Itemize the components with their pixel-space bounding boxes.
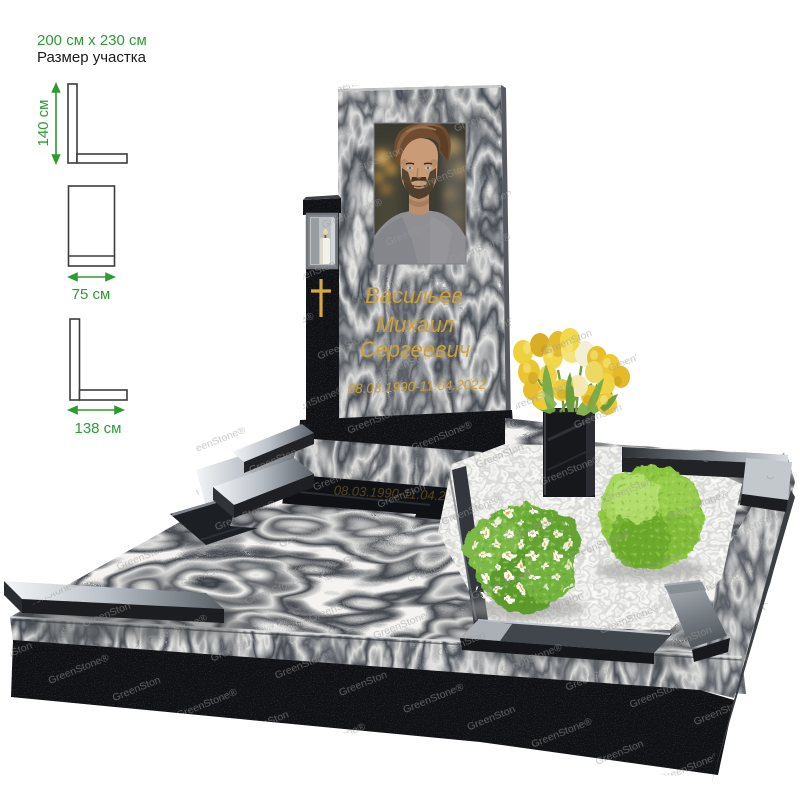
svg-text:140 см: 140 см	[35, 99, 52, 146]
svg-text:138 см: 138 см	[74, 420, 121, 437]
svg-text:Размер участка: Размер участка	[37, 49, 147, 66]
svg-text:75 см: 75 см	[72, 286, 111, 303]
svg-text:200 см x 230 см: 200 см x 230 см	[37, 32, 147, 49]
